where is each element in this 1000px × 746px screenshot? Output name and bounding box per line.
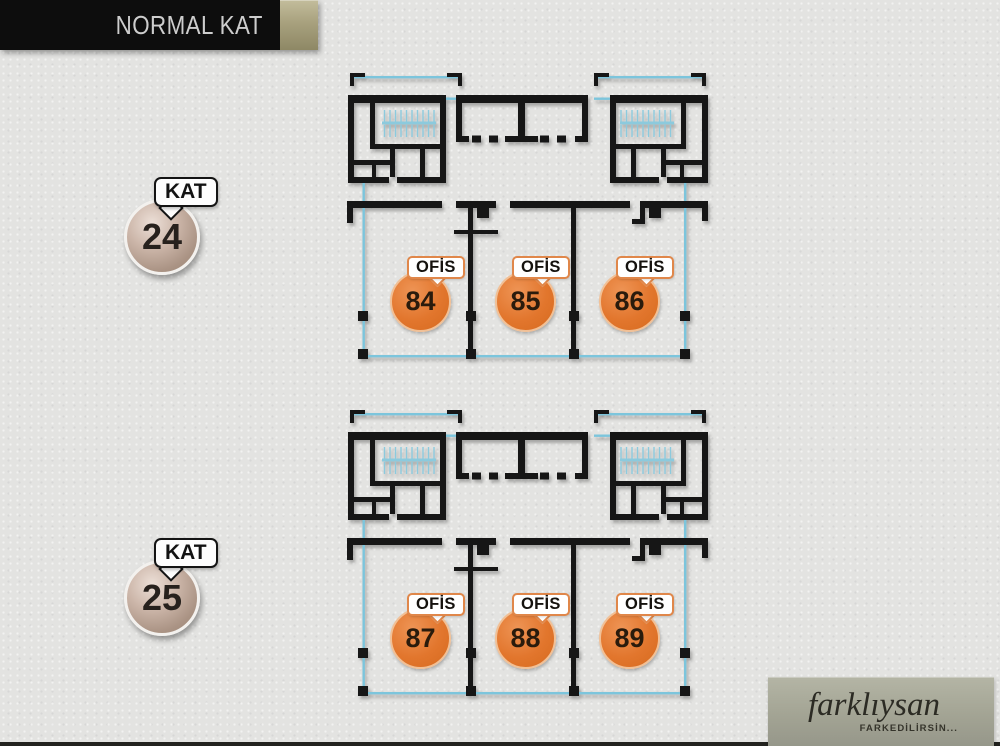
page-background: NORMAL KAT 24 KAT 25 KAT — [0, 0, 1000, 746]
office-badge-87[interactable]: 87 OFİS — [390, 593, 472, 667]
floor-label: KAT — [154, 538, 218, 568]
header-bar: NORMAL KAT — [0, 0, 318, 50]
floor-number: 25 — [142, 577, 182, 619]
office-badge-89[interactable]: 89 OFİS — [599, 593, 681, 667]
page-title: NORMAL KAT — [39, 10, 280, 41]
office-number: 86 — [614, 286, 644, 317]
stairs-icon — [382, 447, 674, 474]
brand-name: farklıysan — [808, 689, 940, 722]
office-label: OFİS — [407, 256, 465, 279]
floor-number: 24 — [142, 216, 182, 258]
office-badge-86[interactable]: 86 OFİS — [599, 256, 681, 330]
office-badge-84[interactable]: 84 OFİS — [390, 256, 472, 330]
floor-badge-25[interactable]: 25 KAT — [124, 538, 216, 634]
brand-logo: farklıysan FARKEDİLİRSİN... — [768, 677, 994, 746]
office-label: OFİS — [616, 593, 674, 616]
floor-label: KAT — [154, 177, 218, 207]
header-gradient-chip — [280, 0, 318, 50]
office-label: OFİS — [407, 593, 465, 616]
brand-tagline: FARKEDİLİRSİN... — [860, 723, 958, 734]
floor-plan-kat-24: 84 OFİS 85 OFİS 86 OFİS — [344, 66, 712, 368]
office-label: OFİS — [512, 593, 570, 616]
office-badge-85[interactable]: 85 OFİS — [495, 256, 577, 330]
stairs-icon — [382, 110, 674, 137]
office-number: 89 — [614, 623, 644, 654]
office-number: 88 — [510, 623, 540, 654]
floor-plan-kat-25: 87 OFİS 88 OFİS 89 OFİS — [344, 403, 712, 705]
office-number: 85 — [510, 286, 540, 317]
office-number: 84 — [405, 286, 435, 317]
office-label: OFİS — [616, 256, 674, 279]
office-badge-88[interactable]: 88 OFİS — [495, 593, 577, 667]
floor-badge-24[interactable]: 24 KAT — [124, 177, 216, 273]
office-label: OFİS — [512, 256, 570, 279]
office-number: 87 — [405, 623, 435, 654]
